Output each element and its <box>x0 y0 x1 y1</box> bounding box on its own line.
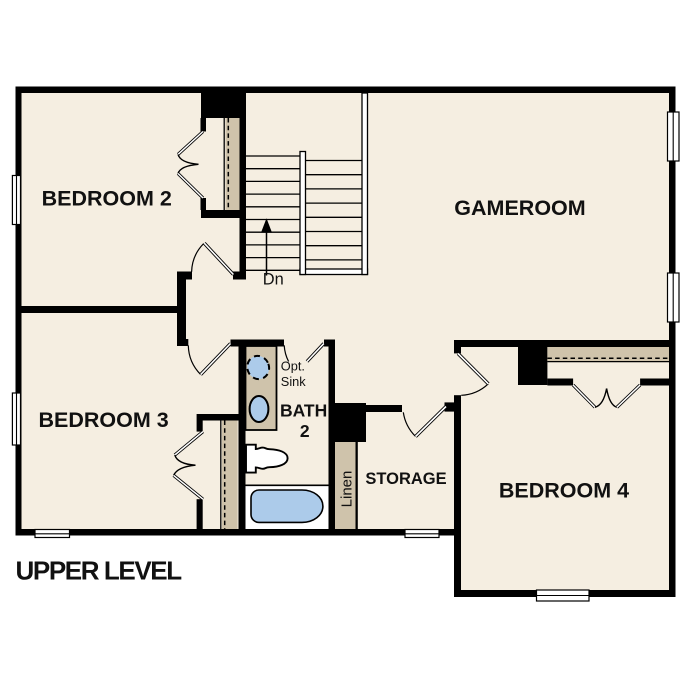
svg-text:BEDROOM 3: BEDROOM 3 <box>38 408 168 432</box>
svg-text:Dn: Dn <box>263 270 284 288</box>
svg-text:BEDROOM 2: BEDROOM 2 <box>42 187 172 211</box>
svg-text:UPPER LEVEL: UPPER LEVEL <box>16 555 183 585</box>
svg-text:BEDROOM 4: BEDROOM 4 <box>499 479 629 503</box>
svg-text:Linen: Linen <box>338 471 355 508</box>
svg-text:STORAGE: STORAGE <box>365 470 446 488</box>
svg-text:2: 2 <box>300 421 310 441</box>
svg-text:Opt.: Opt. <box>281 359 305 374</box>
svg-text:Sink: Sink <box>281 374 306 389</box>
svg-text:GAMEROOM: GAMEROOM <box>454 196 585 220</box>
svg-text:BATH: BATH <box>280 400 327 420</box>
